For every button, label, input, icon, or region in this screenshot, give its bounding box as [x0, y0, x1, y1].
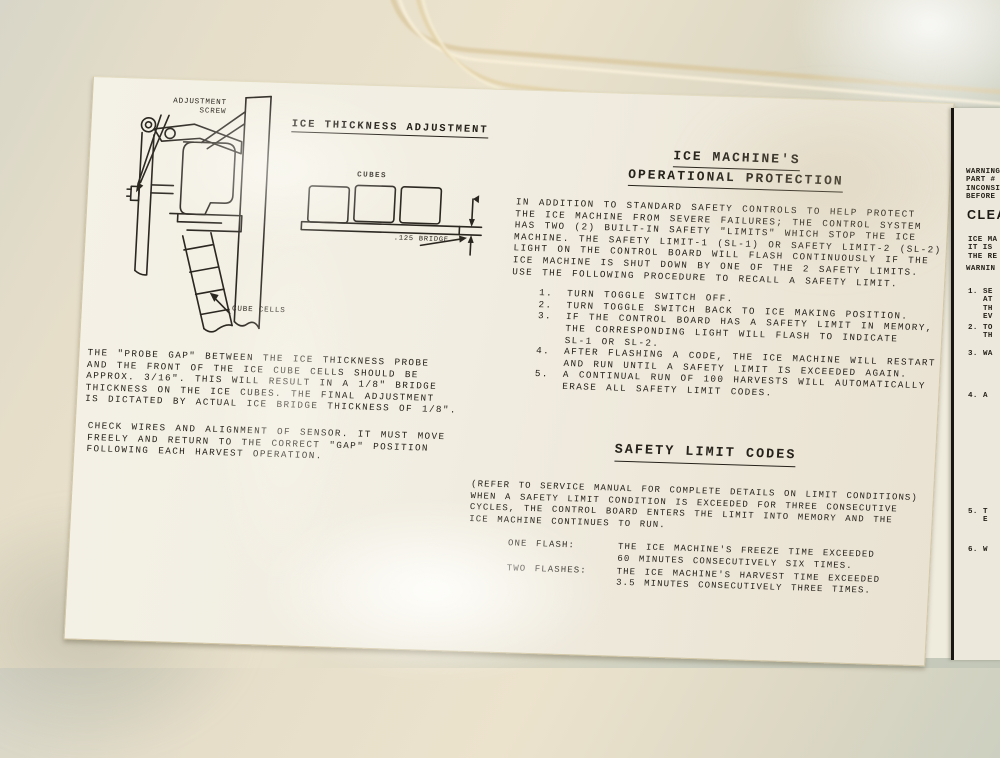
probe-assembly-diagram — [86, 87, 294, 338]
partial-list-item: 1. SE AT TH EV — [968, 288, 993, 321]
step-number: 1. — [539, 287, 554, 299]
partial-list-item: 2. TO TH — [968, 324, 993, 341]
codes-section: SAFETY LIMIT CODES (REFER TO SERVICE MAN… — [466, 437, 939, 600]
check-wires-paragraph: CHECK WIRES AND ALIGNMENT OF SENSOR. IT … — [86, 420, 488, 467]
codes-intro: (REFER TO SERVICE MANUAL FOR COMPLETE DE… — [469, 479, 936, 540]
partial-warning2-text: WARNIN — [966, 265, 995, 273]
codes-table: ONE FLASH: THE ICE MACHINE'S FREEZE TIME… — [466, 537, 933, 599]
partial-list-item: 4. A — [968, 392, 988, 400]
partial-clean-heading: CLEA — [967, 208, 1000, 222]
cubes-label: CUBES — [357, 171, 387, 181]
adjustment-screw-label: ADJUSTMENT SCREW — [140, 97, 227, 117]
code-label: TWO FLASHES: — [506, 563, 587, 577]
bridge-dimension-label: .125 BRIDGE — [394, 235, 449, 245]
step-number: 3. — [538, 310, 553, 322]
protection-heading: ICE MACHINE'S OPERATIONAL PROTECTION — [517, 142, 956, 196]
codes-heading: SAFETY LIMIT CODES — [472, 437, 938, 472]
step-number: 5. — [535, 368, 550, 380]
cubes-diagram — [300, 182, 489, 260]
step-number: 4. — [536, 345, 551, 357]
protection-steps: 1. TURN TOGGLE SWITCH OFF. 2. TURN TOGGL… — [506, 286, 948, 404]
step-number: 2. — [538, 299, 553, 311]
probe-gap-paragraph: THE "PROBE GAP" BETWEEN THE ICE THICKNES… — [85, 347, 488, 417]
partial-list-item: 5. T E — [968, 508, 988, 525]
ice-thickness-heading: ICE THICKNESS ADJUSTMENT — [291, 118, 488, 138]
main-instruction-label: ADJUSTMENT SCREW CUBE CELLS ICE THICKNES… — [63, 76, 954, 666]
cube-cells-label: CUBE CELLS — [232, 305, 286, 315]
adjacent-label-partial: WARNING PART # - INCONSIS BEFORE CLEA IC… — [951, 108, 1000, 660]
partial-intro-text: ICE MA IT IS THE RE — [968, 236, 997, 261]
protection-heading-line2: OPERATIONAL PROTECTION — [628, 166, 845, 193]
code-label: ONE FLASH: — [508, 539, 576, 553]
partial-list-item: 6. W — [968, 546, 988, 554]
partial-list-item: 3. WA — [968, 350, 993, 358]
protection-section: ICE MACHINE'S OPERATIONAL PROTECTION IN … — [506, 142, 956, 404]
protection-intro: IN ADDITION TO STANDARD SAFETY CONTROLS … — [512, 196, 953, 291]
partial-warning-text: WARNING PART # - INCONSIS BEFORE — [966, 168, 1000, 201]
